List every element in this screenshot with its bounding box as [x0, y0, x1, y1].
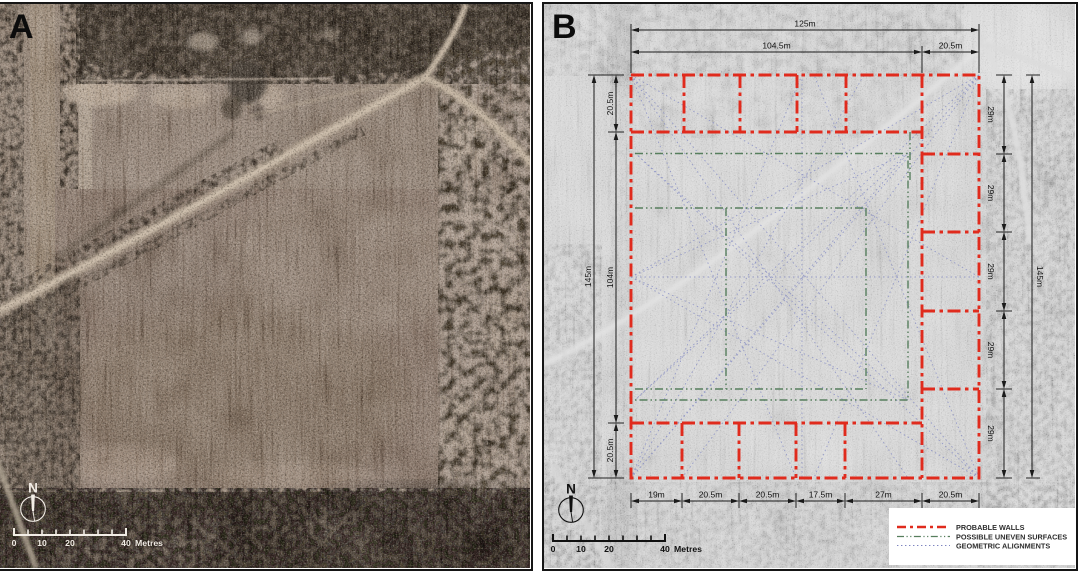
svg-text:125m: 125m [794, 19, 815, 29]
svg-text:0: 0 [551, 544, 556, 554]
svg-text:0: 0 [11, 538, 16, 548]
svg-text:Metres: Metres [674, 544, 702, 554]
svg-text:20: 20 [604, 544, 614, 554]
svg-text:17.5m: 17.5m [809, 490, 833, 500]
svg-text:PROBABLE WALLS: PROBABLE WALLS [956, 523, 1025, 532]
svg-text:145m: 145m [583, 266, 593, 287]
svg-text:19m: 19m [648, 490, 665, 500]
svg-text:20.5m: 20.5m [756, 490, 780, 500]
svg-text:Metres: Metres [135, 538, 163, 548]
svg-text:29m: 29m [986, 106, 996, 123]
svg-text:20.5m: 20.5m [699, 490, 723, 500]
svg-text:10: 10 [576, 544, 586, 554]
svg-text:40: 40 [660, 544, 670, 554]
svg-text:29m: 29m [986, 263, 996, 280]
svg-text:POSSIBLE UNEVEN SURFACES: POSSIBLE UNEVEN SURFACES [956, 533, 1067, 542]
svg-text:N: N [28, 481, 38, 496]
svg-text:104.5m: 104.5m [762, 41, 790, 51]
svg-text:GEOMETRIC ALIGNMENTS: GEOMETRIC ALIGNMENTS [956, 542, 1050, 551]
svg-text:20.5m: 20.5m [939, 41, 963, 51]
svg-text:N: N [566, 482, 576, 497]
svg-text:20.5m: 20.5m [605, 439, 615, 463]
svg-text:145m: 145m [1035, 266, 1045, 287]
svg-text:29m: 29m [986, 185, 996, 202]
svg-text:20.5m: 20.5m [605, 92, 615, 116]
svg-text:40: 40 [121, 538, 131, 548]
svg-text:10: 10 [37, 538, 47, 548]
svg-text:27m: 27m [875, 490, 892, 500]
svg-text:20.5m: 20.5m [939, 490, 963, 500]
svg-text:29m: 29m [986, 425, 996, 442]
svg-text:29m: 29m [986, 342, 996, 359]
svg-text:20: 20 [65, 538, 75, 548]
svg-text:104m: 104m [605, 267, 615, 288]
